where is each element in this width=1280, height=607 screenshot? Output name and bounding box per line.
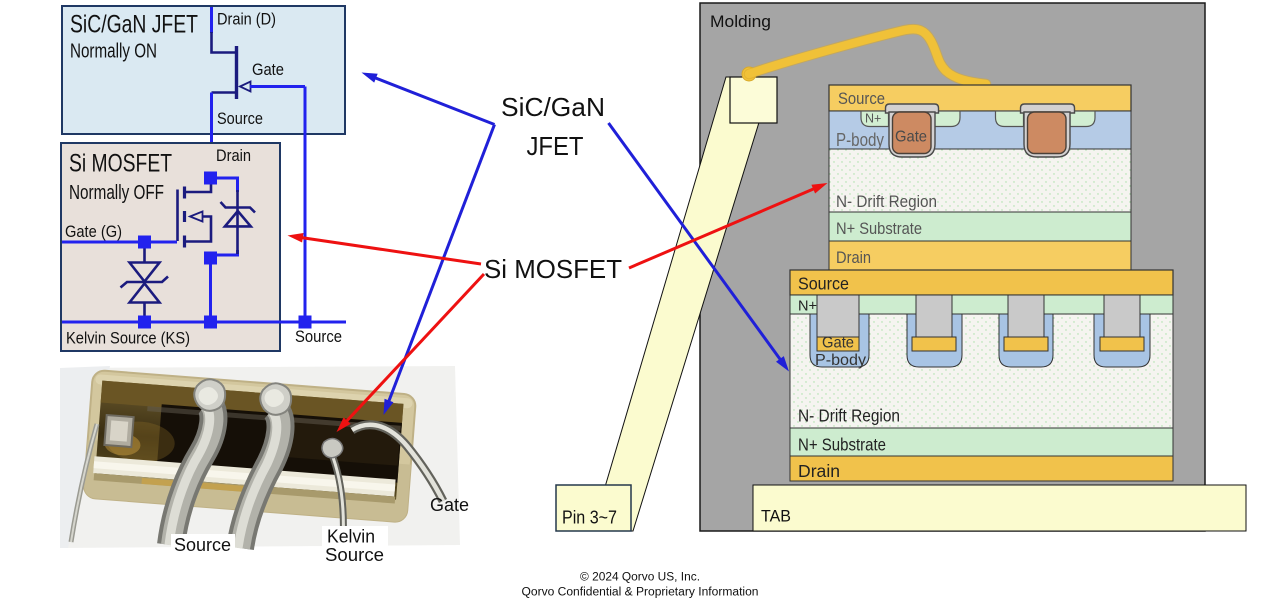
svg-text:N+: N+: [798, 298, 817, 315]
svg-text:Source: Source: [295, 328, 342, 346]
svg-text:Gate: Gate: [822, 335, 854, 352]
svg-text:Pin 3~7: Pin 3~7: [562, 508, 617, 528]
svg-text:Gate: Gate: [252, 61, 284, 79]
svg-text:SiC/GaN JFET: SiC/GaN JFET: [70, 11, 198, 39]
svg-text:SiC/GaN: SiC/GaN: [501, 92, 605, 122]
svg-text:Si MOSFET: Si MOSFET: [484, 254, 622, 284]
svg-text:N- Drift Region: N- Drift Region: [836, 192, 937, 211]
svg-text:N+ Substrate: N+ Substrate: [798, 435, 886, 455]
svg-text:JFET: JFET: [527, 131, 584, 161]
svg-text:N+: N+: [865, 112, 881, 126]
svg-text:Si MOSFET: Si MOSFET: [69, 150, 172, 178]
svg-text:Gate (G): Gate (G): [65, 223, 122, 241]
svg-text:Source: Source: [174, 535, 231, 555]
svg-text:Normally OFF: Normally OFF: [69, 182, 164, 204]
svg-text:Normally ON: Normally ON: [70, 41, 157, 63]
svg-text:Source: Source: [325, 545, 384, 565]
svg-text:P-body: P-body: [815, 352, 866, 369]
svg-text:N+ Substrate: N+ Substrate: [836, 219, 922, 238]
svg-text:Kelvin Source (KS): Kelvin Source (KS): [66, 330, 190, 348]
svg-text:Gate: Gate: [430, 495, 469, 515]
svg-text:Drain (D): Drain (D): [217, 11, 276, 29]
svg-text:TAB: TAB: [761, 507, 791, 526]
svg-text:P-body: P-body: [836, 130, 884, 150]
svg-text:Drain: Drain: [836, 248, 871, 267]
svg-text:Drain: Drain: [216, 147, 251, 165]
svg-text:© 2024 Qorvo US, Inc.: © 2024 Qorvo US, Inc.: [580, 572, 700, 584]
svg-text:N- Drift Region: N- Drift Region: [798, 406, 900, 426]
svg-text:Source: Source: [217, 110, 263, 128]
svg-text:Gate: Gate: [895, 129, 927, 146]
svg-text:Molding: Molding: [710, 12, 771, 31]
svg-text:Kelvin: Kelvin: [327, 527, 375, 547]
svg-text:Source: Source: [798, 274, 849, 294]
svg-text:Drain: Drain: [798, 461, 840, 481]
svg-text:Source: Source: [838, 89, 885, 108]
svg-text:Qorvo Confidential & Proprieta: Qorvo Confidential & Proprietary Informa…: [522, 587, 759, 599]
